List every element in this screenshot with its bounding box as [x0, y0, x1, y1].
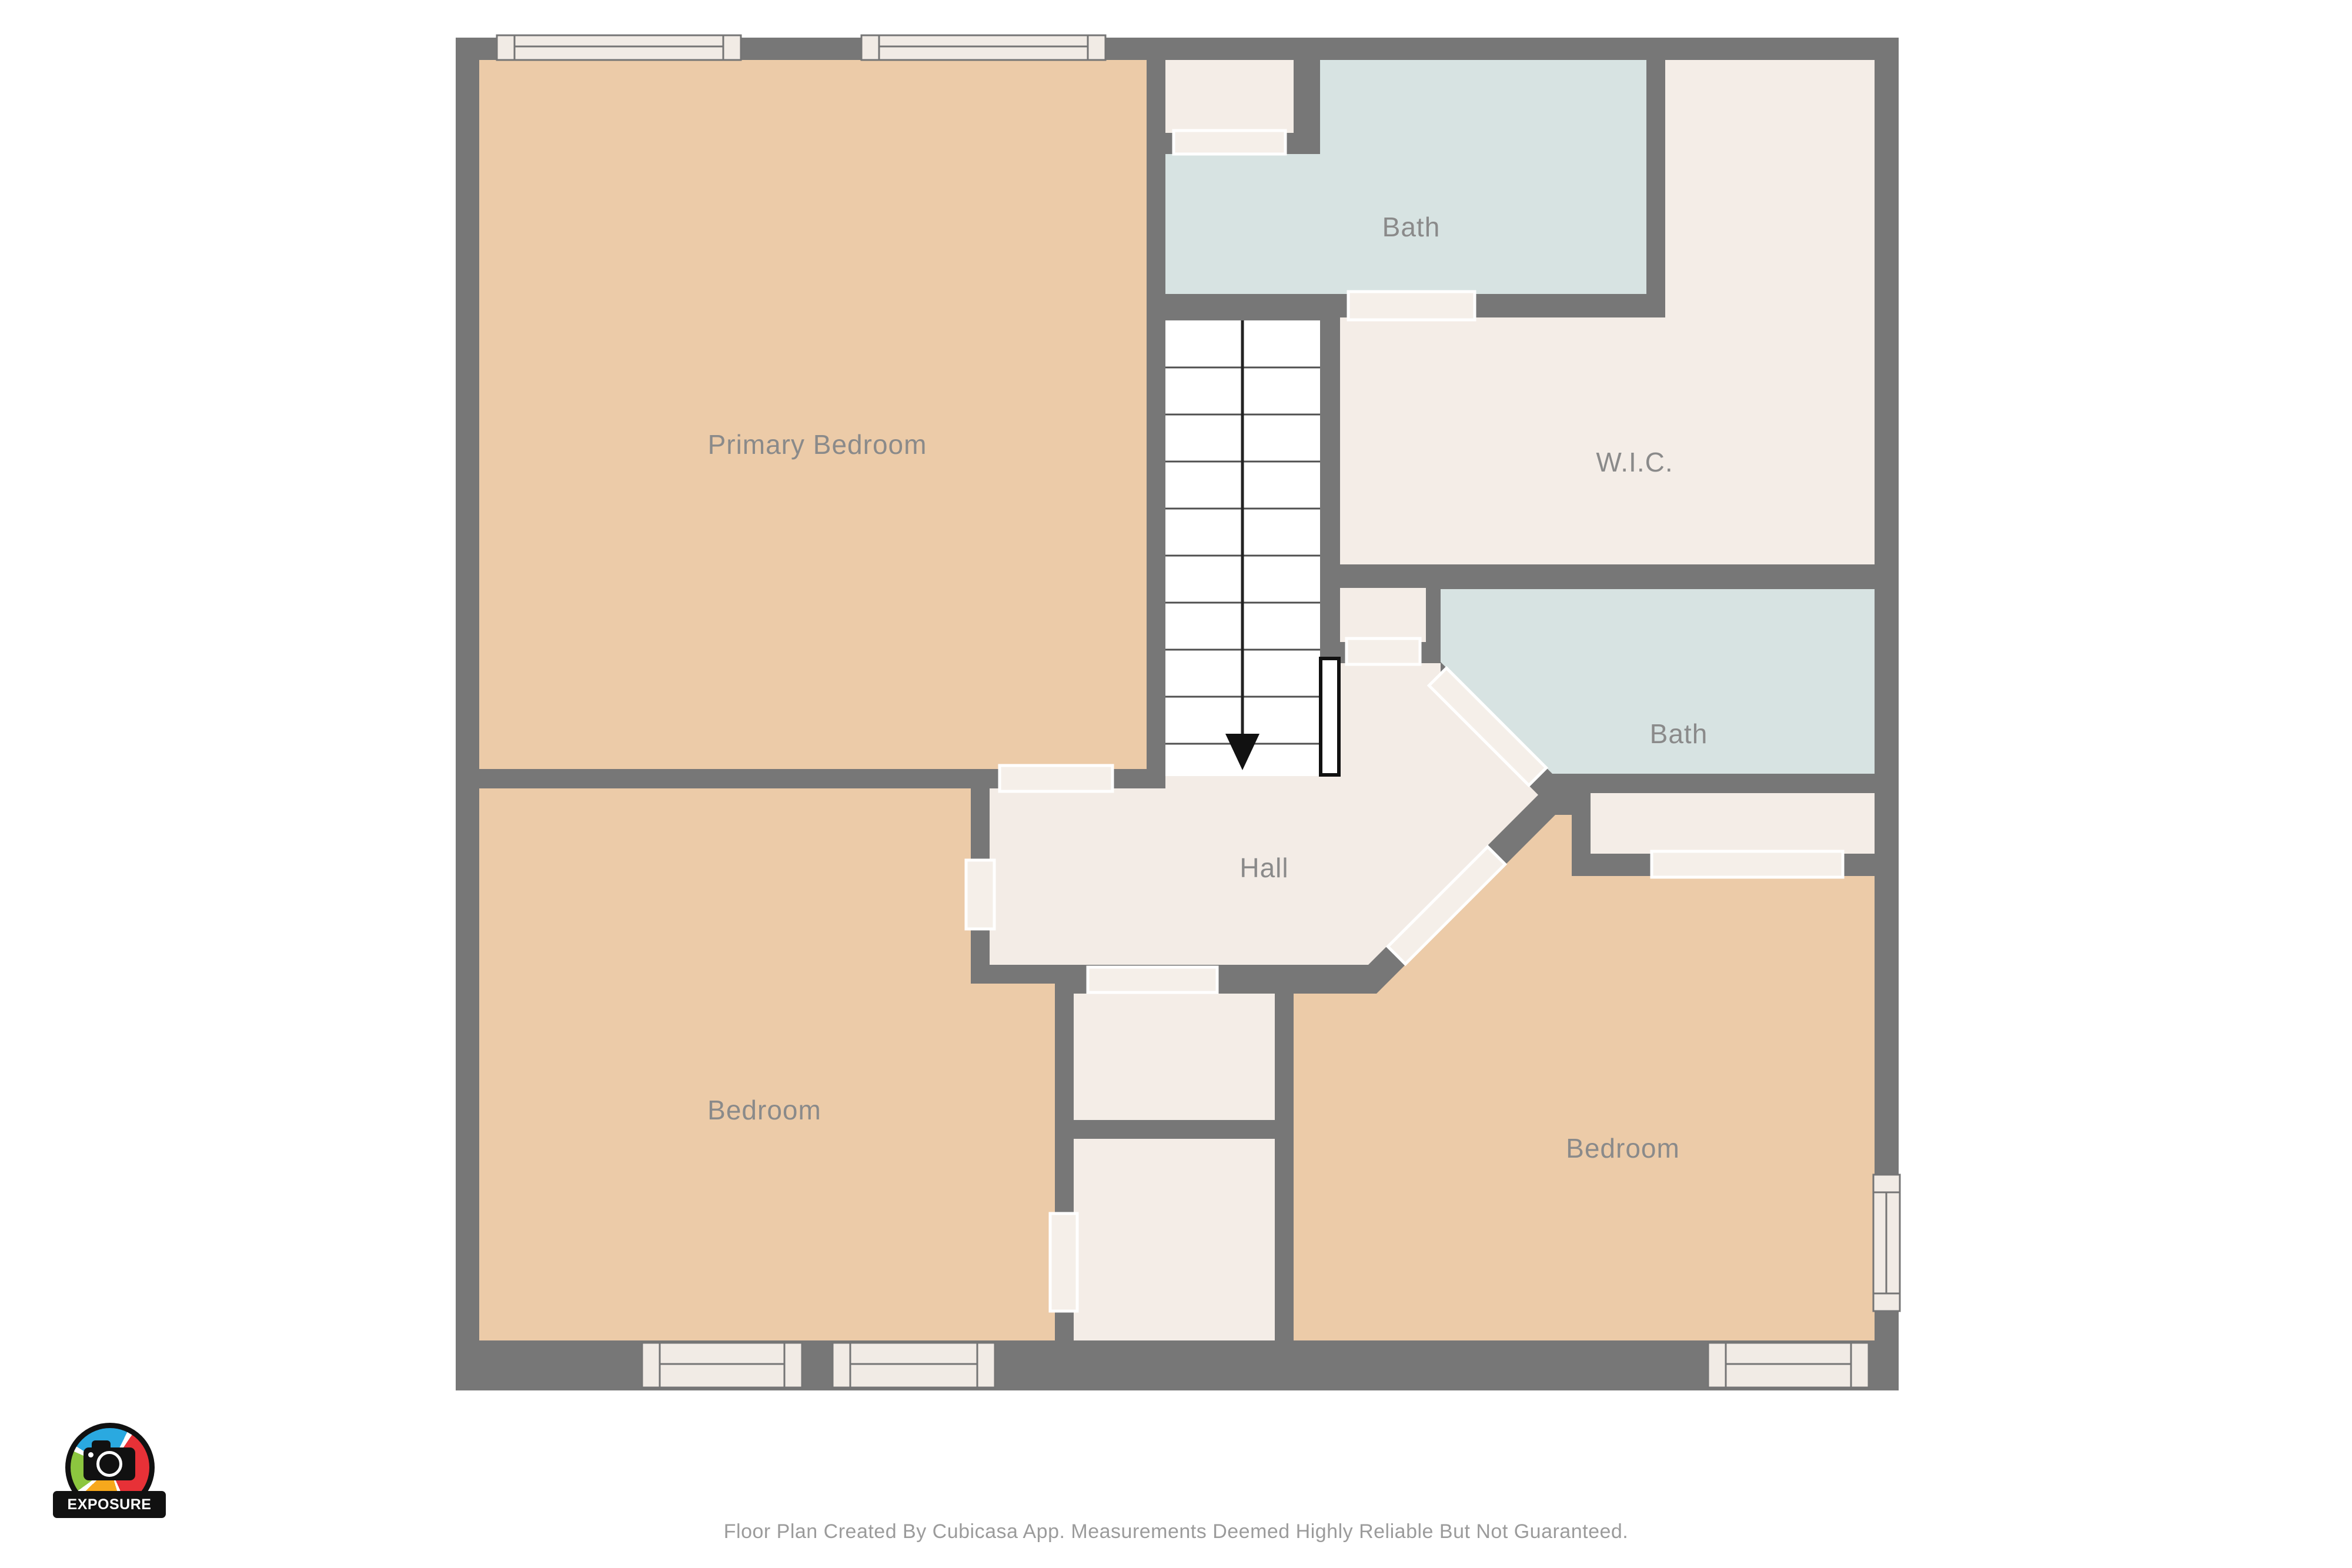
room-label-bath-right: Bath — [1650, 718, 1708, 749]
closet-top — [1165, 60, 1294, 133]
room-label-bedroom-right: Bedroom — [1566, 1133, 1680, 1164]
door-opening-bedroom-left-closet — [1050, 1213, 1077, 1311]
window-bottom-2 — [833, 1343, 995, 1388]
logo-banner-text: EXPOSURE MEDIA — [53, 1491, 166, 1518]
hall-linen-nook — [1340, 588, 1426, 642]
window-bottom-3 — [1708, 1343, 1869, 1388]
disclaimer-text: Floor Plan Created By Cubicasa App. Meas… — [0, 1520, 2352, 1543]
window-top-2 — [861, 35, 1105, 60]
camera-lens-icon — [96, 1451, 122, 1477]
door-opening-primary-bedroom — [1000, 765, 1112, 791]
door-opening-hall-closet — [1088, 967, 1217, 992]
floor-plan-page: { "rooms": [ {"id": "primary-bedroom", "… — [0, 0, 2352, 1568]
room-label-bath-top: Bath — [1382, 212, 1441, 242]
door-leaf-stairs — [1321, 658, 1339, 775]
door-opening-hall-bedroom-left — [966, 860, 994, 929]
room-label-bedroom-left: Bedroom — [707, 1095, 821, 1125]
door-opening-hall-nook — [1347, 638, 1420, 664]
closet-center-lower — [1074, 1139, 1275, 1340]
room-label-primary-bedroom: Primary Bedroom — [708, 429, 927, 460]
room-label-hall: Hall — [1240, 852, 1288, 883]
window-bottom-1 — [642, 1343, 802, 1388]
door-opening-closet-bedroom-right — [1652, 851, 1843, 877]
window-top-1 — [497, 35, 741, 60]
room-label-wic: W.I.C. — [1596, 447, 1673, 477]
stairs — [1165, 320, 1320, 776]
room-primary-bedroom — [479, 60, 1147, 769]
closet-center-upper — [1074, 994, 1275, 1120]
floor-plan: Primary Bedroom Bath W.I.C. Bath Hall Be… — [0, 0, 2352, 1568]
door-opening-bath-top-wic — [1348, 292, 1475, 320]
door-opening-top-closet — [1174, 131, 1285, 154]
closet-right-bedroom — [1591, 793, 1875, 854]
